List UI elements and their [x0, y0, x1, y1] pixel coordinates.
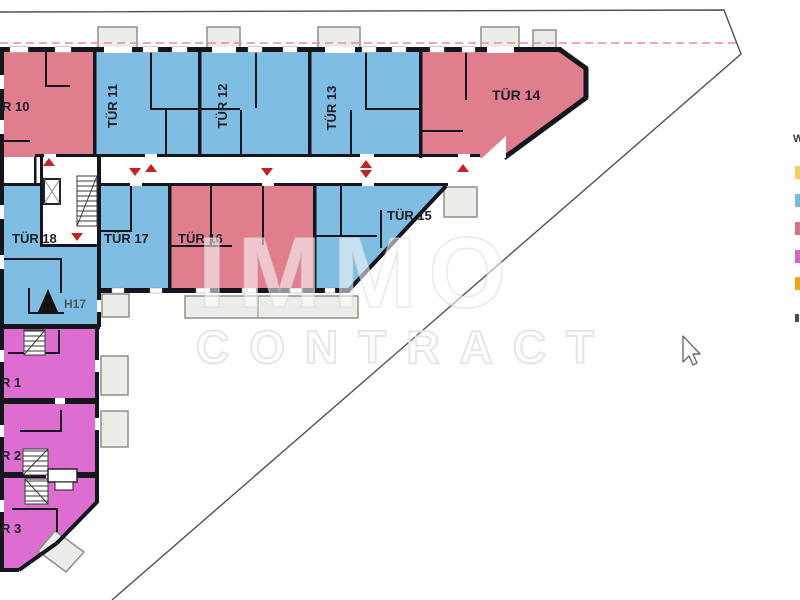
unit-label-r2: R 2 [1, 448, 21, 463]
floor-plan-canvas: R 10 TÜR 11 TÜR 12 TÜR 13 TÜR 14 TÜR 15 … [0, 0, 800, 600]
legend-text-sliver [795, 314, 799, 322]
unit-label-r1: R 1 [1, 375, 21, 390]
unit-label-r3: R 3 [1, 521, 21, 536]
mouse-cursor-icon [683, 336, 700, 365]
elevator-label: H17 [64, 297, 86, 311]
floor-plan-image: R 10 TÜR 11 TÜR 12 TÜR 13 TÜR 14 TÜR 15 … [0, 0, 800, 600]
elevator-shaft [44, 179, 60, 204]
unit-label-tuer-18: TÜR 18 [12, 231, 57, 246]
unit-label-tuer-16: TÜR 16 [178, 231, 223, 246]
unit-label-tuer-10: R 10 [2, 99, 29, 114]
unit-label-tuer-12: TÜR 12 [215, 84, 230, 129]
legend-partial-label: W [793, 133, 800, 145]
legend-swatch-yellow [795, 166, 800, 179]
legend-swatch-magenta [795, 250, 800, 263]
legend-swatch-orange [795, 277, 800, 290]
corridor [0, 157, 480, 185]
unit-label-tuer-11: TÜR 11 [105, 84, 120, 128]
unit-label-tuer-17: TÜR 17 [104, 231, 149, 246]
unit-label-tuer-14: TÜR 14 [492, 87, 540, 103]
legend-swatch-blue [795, 194, 800, 207]
unit-label-tuer-13: TÜR 13 [324, 86, 339, 131]
legend-swatch-red [795, 222, 800, 235]
unit-label-tuer-15: TÜR 15 [387, 208, 432, 223]
